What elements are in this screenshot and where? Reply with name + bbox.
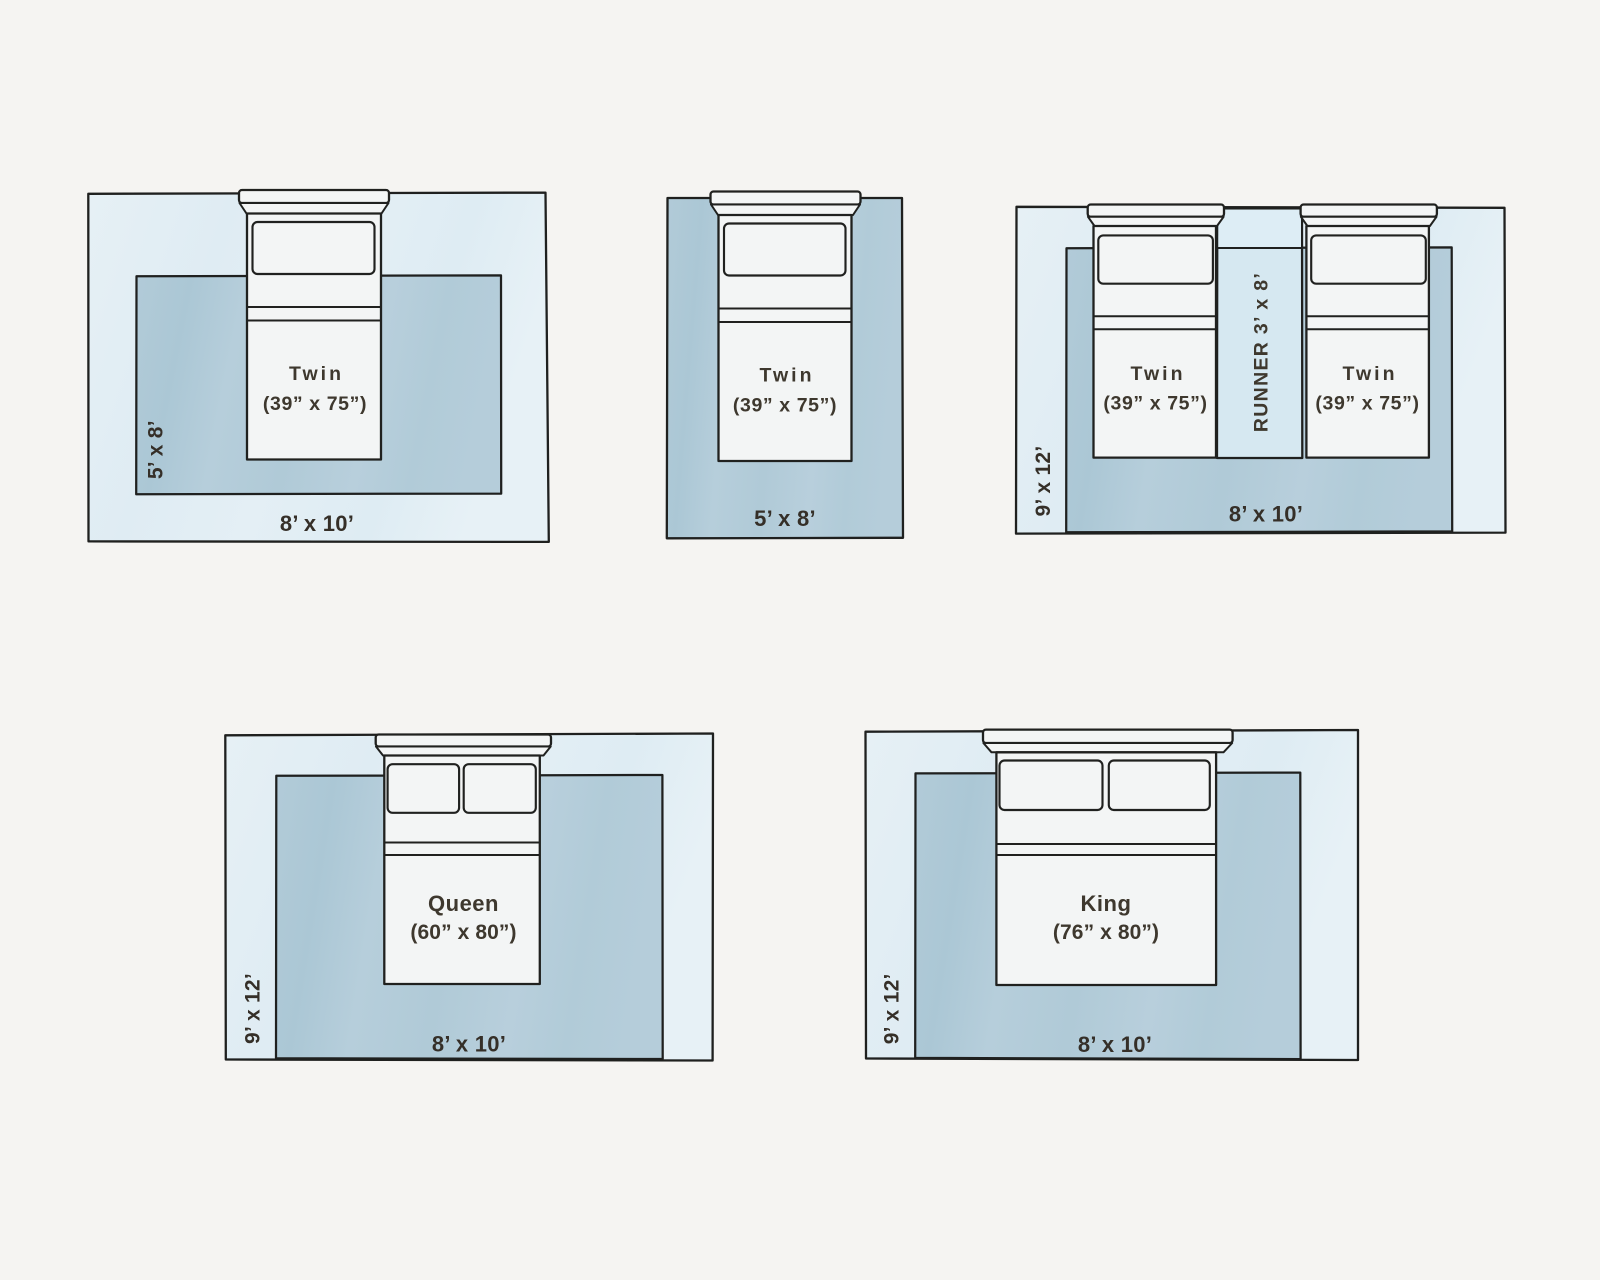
svg-text:Twin: Twin [1343,363,1398,385]
svg-text:(39” x 75”): (39” x 75”) [1103,393,1207,415]
svg-text:(39” x 75”): (39” x 75”) [1315,393,1419,415]
svg-text:8’ x 10’: 8’ x 10’ [432,1032,506,1057]
svg-text:(76” x 80”): (76” x 80”) [1053,921,1159,944]
svg-text:9’ x 12’: 9’ x 12’ [1032,446,1055,517]
svg-text:(60” x 80”): (60” x 80”) [410,921,516,944]
svg-text:Queen: Queen [428,891,499,916]
svg-text:(39” x 75”): (39” x 75”) [733,395,837,417]
svg-text:8’ x 10’: 8’ x 10’ [1078,1032,1152,1057]
svg-text:9’ x 12’: 9’ x 12’ [242,973,265,1044]
svg-text:RUNNER 3’ x 8’: RUNNER 3’ x 8’ [1251,272,1273,432]
svg-text:9’ x 12’: 9’ x 12’ [880,973,903,1044]
svg-text:5’ x 8’: 5’ x 8’ [145,420,168,479]
svg-text:(39” x 75”): (39” x 75”) [263,393,367,415]
svg-text:King: King [1081,891,1132,916]
svg-text:8’ x 10’: 8’ x 10’ [1229,502,1303,527]
svg-text:Twin: Twin [760,365,815,387]
svg-text:5’ x 8’: 5’ x 8’ [754,506,816,531]
svg-text:Twin: Twin [1131,363,1186,385]
svg-text:8’ x 10’: 8’ x 10’ [280,511,354,536]
svg-text:Twin: Twin [289,363,344,385]
